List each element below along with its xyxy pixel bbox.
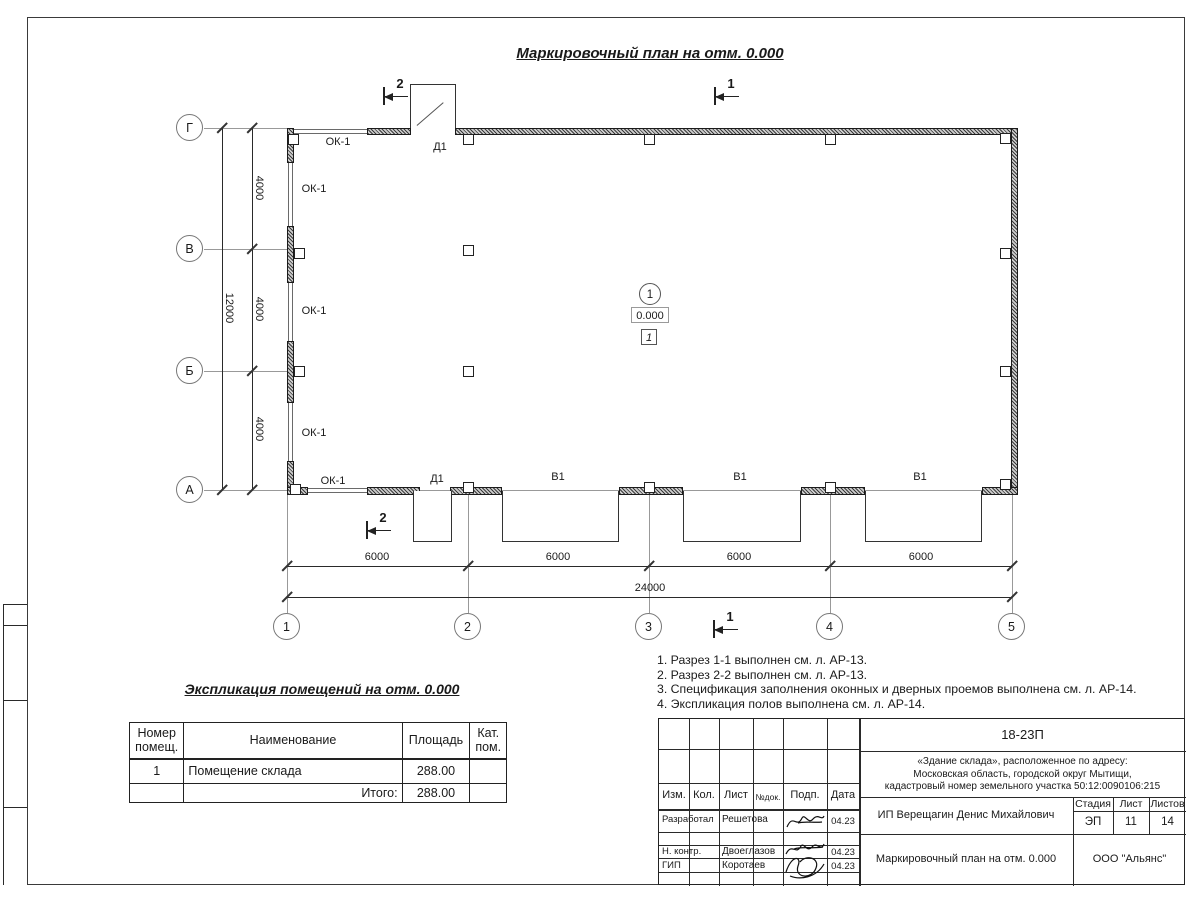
stamp-col-izm: Изм.	[659, 789, 689, 801]
signature-korotaev	[782, 850, 828, 882]
column-mark	[463, 482, 474, 493]
schedule-total-label: Итого:	[184, 784, 402, 803]
stamp-role-gip: ГИП	[662, 860, 681, 871]
note-item: 3. Спецификация заполнения оконных и две…	[657, 682, 1136, 697]
window-ok1	[294, 129, 367, 134]
note-item: 2. Разрез 2-2 выполнен см. л. АР-13.	[657, 668, 1136, 683]
note-item: 4. Экспликация полов выполнена см. л. АР…	[657, 697, 1136, 712]
wall-segment	[1011, 128, 1018, 491]
stamp-line	[659, 832, 859, 833]
stamp-object-line: кадастровый номер земельного участка 50:…	[861, 781, 1184, 794]
filing-strip-divider	[3, 807, 27, 808]
gate-label: В1	[538, 471, 578, 483]
elevation-mark: 0.000	[631, 307, 669, 323]
stamp-line	[1073, 811, 1186, 812]
section-arrow-icon	[714, 626, 723, 634]
stamp-col-podp: Подп.	[783, 789, 827, 801]
column-mark	[290, 484, 301, 495]
schedule-cell-name: Помещение склада	[184, 759, 402, 784]
stamp-line	[859, 751, 1186, 752]
axis-line-a	[204, 490, 288, 491]
axis-bubble-4: 4	[816, 613, 843, 640]
stamp-line	[659, 809, 859, 811]
column-mark	[463, 366, 474, 377]
wall-segment	[287, 226, 294, 283]
schedule-cell-number: 1	[130, 759, 184, 784]
axis-bubble-b: Б	[176, 357, 203, 384]
window-label: ОК-1	[292, 183, 336, 195]
dim-6000: 6000	[714, 551, 764, 563]
column-mark	[1000, 479, 1011, 490]
dock-apron	[502, 491, 619, 542]
section-number: 2	[390, 76, 410, 91]
window-label: ОК-1	[311, 475, 355, 487]
floor-type-mark: 1	[641, 329, 657, 345]
stamp-stage-value: ЭП	[1073, 816, 1113, 828]
axis-bubble-3: 3	[635, 613, 662, 640]
stamp-company: ООО "Альянс"	[1073, 853, 1186, 865]
filing-strip-divider	[3, 700, 27, 701]
stamp-name-dvoeglazov: Двоеглазов	[722, 846, 775, 857]
axis-line-3	[649, 494, 650, 613]
axis-bubble-v: В	[176, 235, 203, 262]
stamp-line	[659, 872, 859, 873]
axis-bubble-g: Г	[176, 114, 203, 141]
note-item: 1. Разрез 1-1 выполнен см. л. АР-13.	[657, 653, 1136, 668]
axis-line-2	[468, 494, 469, 613]
stamp-stage-label: Стадия	[1073, 798, 1113, 810]
schedule-total-area: 288.00	[402, 784, 470, 803]
door-label: Д1	[420, 141, 460, 153]
stamp-drawing-name: Маркировочный план на отм. 0.000	[859, 853, 1073, 865]
stamp-line	[719, 719, 720, 886]
gate-label: В1	[900, 471, 940, 483]
door-label: Д1	[417, 473, 457, 485]
stamp-sheets-label: Листов	[1149, 798, 1186, 810]
schedule-header-name: Наименование	[184, 723, 402, 759]
wall-pier	[450, 487, 502, 495]
column-mark	[825, 134, 836, 145]
stamp-sheet-value: 11	[1113, 816, 1149, 828]
stamp-date: 04.23	[827, 861, 859, 872]
dim-6000: 6000	[896, 551, 946, 563]
stamp-line	[659, 749, 859, 750]
stamp-col-doc: №док.	[753, 792, 783, 802]
axis-bubble-2: 2	[454, 613, 481, 640]
stamp-role-developed: Разработал	[662, 814, 714, 825]
wall-segment	[367, 128, 411, 135]
stamp-project-code: 18-23П	[859, 727, 1186, 742]
column-mark	[644, 482, 655, 493]
section-arrow-icon	[715, 93, 724, 101]
stamp-object-line: «Здание склада», расположенное по адресу…	[861, 756, 1184, 769]
notes-list: 1. Разрез 1-1 выполнен см. л. АР-13. 2. …	[657, 653, 1136, 711]
section-number: 1	[721, 76, 741, 91]
axis-bubble-a: А	[176, 476, 203, 503]
column-mark	[1000, 133, 1011, 144]
filing-strip-line	[3, 604, 4, 885]
axis-line-g	[204, 128, 288, 129]
wall-segment	[455, 128, 1018, 135]
column-mark	[463, 134, 474, 145]
axis-line-v	[204, 249, 288, 250]
dock-apron	[413, 491, 452, 542]
signature-reshetova	[784, 811, 826, 832]
dim-4000: 4000	[253, 166, 265, 210]
window-ok1	[308, 488, 367, 493]
window-label: ОК-1	[292, 305, 336, 317]
dim-6000: 6000	[352, 551, 402, 563]
schedule-cell-empty	[130, 784, 184, 803]
dim-24000: 24000	[620, 582, 680, 594]
filing-strip-divider	[3, 625, 27, 626]
room-schedule-table: Номер помещ. Наименование Площадь Кат. п…	[129, 722, 507, 803]
room-number-bubble: 1	[639, 283, 661, 305]
schedule-header-area: Площадь	[402, 723, 470, 759]
axis-line-4	[830, 494, 831, 613]
column-mark	[825, 482, 836, 493]
stamp-date: 04.23	[827, 816, 859, 827]
wall-segment	[287, 341, 294, 403]
plan-title: Маркировочный план на отм. 0.000	[430, 45, 870, 62]
column-mark	[294, 248, 305, 259]
window-label: ОК-1	[292, 427, 336, 439]
stamp-line	[659, 858, 859, 859]
stamp-col-data: Дата	[827, 789, 859, 801]
stamp-col-list: Лист	[719, 789, 753, 801]
stamp-col-kol: Кол.	[689, 789, 719, 801]
column-mark	[644, 134, 655, 145]
section-arrow-icon	[367, 527, 376, 535]
schedule-title: Экспликация помещений на отм. 0.000	[142, 681, 502, 697]
title-block: Изм. Кол. Лист №док. Подп. Дата Разработ…	[658, 718, 1185, 885]
stamp-name-korotaev: Коротаев	[722, 860, 765, 871]
column-mark	[463, 245, 474, 256]
dock-apron	[865, 491, 982, 542]
schedule-header-cat: Кат. пом.	[470, 723, 507, 759]
dim-4000: 4000	[253, 407, 265, 451]
stamp-line	[859, 834, 1186, 835]
stamp-role-ncontrol: Н. контр.	[662, 846, 701, 857]
stamp-sheets-value: 14	[1149, 816, 1186, 828]
stamp-date: 04.23	[827, 847, 859, 858]
schedule-cell-area: 288.00	[402, 759, 470, 784]
dim-4000: 4000	[253, 287, 265, 331]
stamp-name-reshetova: Решетова	[722, 814, 768, 825]
dim-6000: 6000	[533, 551, 583, 563]
stamp-object-line: Московская область, городской округ Мыти…	[861, 769, 1184, 782]
dim-12000: 12000	[223, 286, 235, 330]
dim-line-h-total	[287, 597, 1012, 598]
column-mark	[1000, 248, 1011, 259]
schedule-cell-cat	[470, 759, 507, 784]
vestibule	[410, 84, 456, 128]
dock-apron	[683, 491, 801, 542]
stamp-client: ИП Верещагин Денис Михайлович	[859, 809, 1073, 821]
section-arrow-icon	[384, 93, 393, 101]
section-number: 1	[720, 609, 740, 624]
stamp-line	[689, 719, 690, 886]
window-label: ОК-1	[316, 136, 360, 148]
gate-label: В1	[720, 471, 760, 483]
schedule-header-number: Номер помещ.	[130, 723, 184, 759]
axis-bubble-5: 5	[998, 613, 1025, 640]
schedule-cell-empty	[470, 784, 507, 803]
stamp-object-address: «Здание склада», расположенное по адресу…	[861, 756, 1184, 794]
axis-line-b	[204, 371, 288, 372]
axis-bubble-1: 1	[273, 613, 300, 640]
column-mark	[288, 134, 299, 145]
column-mark	[1000, 366, 1011, 377]
stamp-sheet-label: Лист	[1113, 798, 1149, 810]
filing-strip-divider	[3, 604, 27, 605]
section-number: 2	[373, 510, 393, 525]
drawing-sheet: Маркировочный план на отм. 0.000 Г В Б А…	[0, 0, 1200, 900]
column-mark	[294, 366, 305, 377]
stamp-line	[659, 783, 859, 784]
